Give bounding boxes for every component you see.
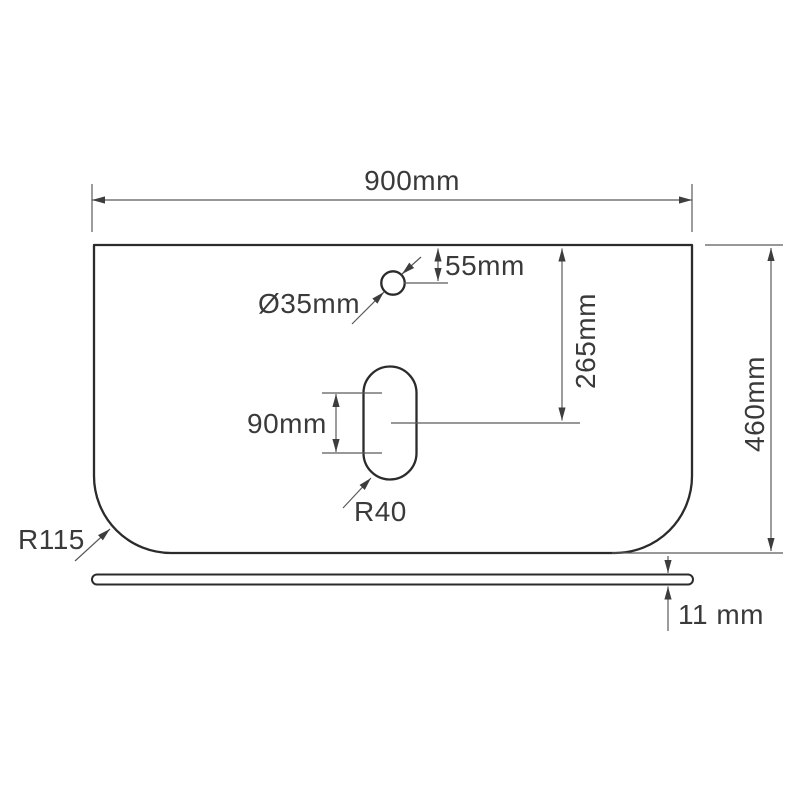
height-dimension-label: 460mm (739, 356, 770, 452)
drawing-svg: 900mm 55mm Ø35mm 265mm 90mm R40 R115 460… (0, 0, 800, 800)
hole-diameter-leader-upper (402, 257, 421, 274)
slot-radius-label: R40 (354, 496, 407, 527)
hole-offset-label: 55mm (445, 250, 525, 281)
tap-hole (381, 271, 404, 294)
panel-side-view-outline (92, 575, 693, 585)
technical-drawing-canvas: 900mm 55mm Ø35mm 265mm 90mm R40 R115 460… (0, 0, 800, 800)
corner-radius-label: R115 (18, 524, 85, 555)
slot-centre-label: 265mm (570, 293, 601, 389)
thickness-label: 11 mm (678, 599, 764, 630)
slot-length-label: 90mm (247, 408, 327, 439)
width-dimension-label: 900mm (364, 165, 460, 196)
hole-diameter-label: Ø35mm (258, 288, 360, 319)
